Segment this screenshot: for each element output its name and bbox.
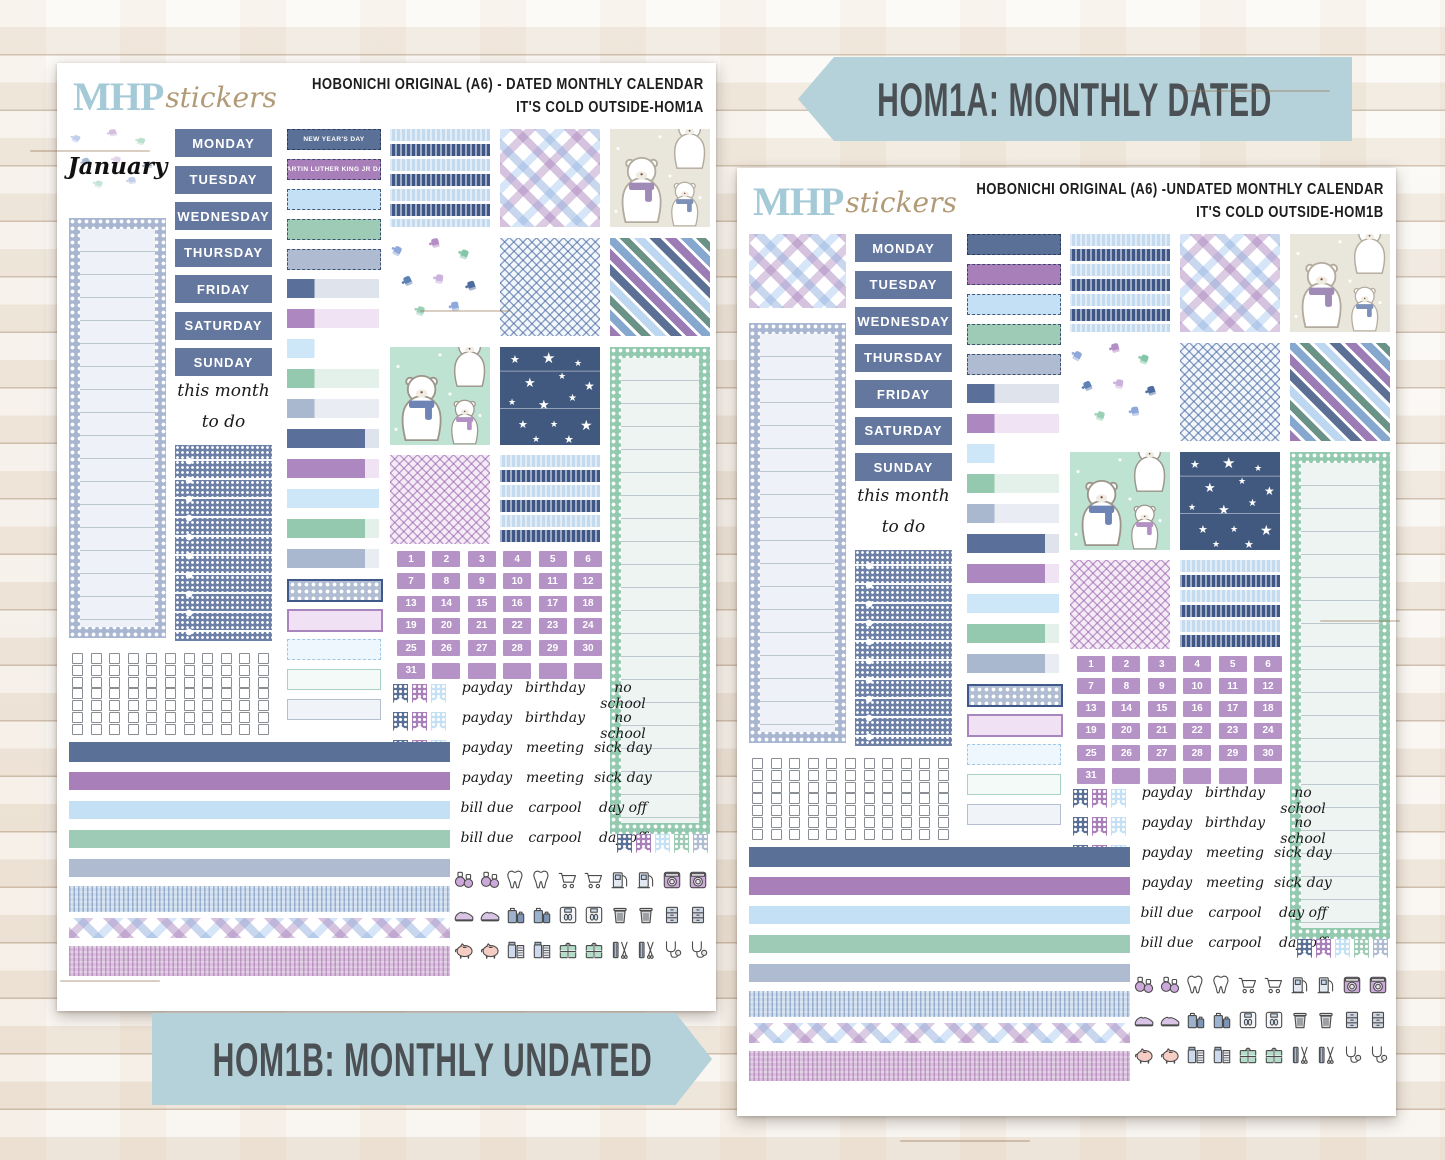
date-number-sticker: 28 <box>1183 745 1211 761</box>
pattern-box-bears-white <box>610 129 710 227</box>
label-box-sticker <box>287 669 381 690</box>
checkbox-sticker <box>109 712 120 723</box>
checkbox-sticker <box>864 793 875 804</box>
checkbox-sticker <box>239 712 250 723</box>
checkbox-sticker <box>109 665 120 676</box>
label-banner-hom1a: HOM1A: MONTHLY DATED <box>798 57 1352 141</box>
label-box-sticker <box>967 264 1061 285</box>
sticker-sheet-monthly-dated: MHPstickers HOBONICHI ORIGINAL (A6) - DA… <box>57 63 716 1011</box>
trash-can-icon <box>609 904 631 926</box>
checkbox-sticker <box>826 817 837 828</box>
checkbox-sticker <box>72 724 83 735</box>
star-glyph: ★ <box>1260 523 1273 537</box>
pattern-box-mittens <box>1070 343 1170 441</box>
checkbox-sticker <box>184 688 195 699</box>
color-bar-sticker <box>287 489 379 508</box>
label-box-sticker <box>287 219 381 240</box>
blank-date-sticker <box>503 663 531 679</box>
checkbox-sticker <box>938 793 949 804</box>
label-box-sticker <box>967 804 1061 825</box>
piggy-bank-icon <box>479 939 501 961</box>
weekday-sticker: WEDNESDAY <box>175 202 272 230</box>
date-number-sticker: 31 <box>397 663 425 679</box>
color-bar-sticker <box>967 444 1059 463</box>
date-number-sticker: 8 <box>1112 678 1140 694</box>
date-number-sticker: 5 <box>1219 656 1247 672</box>
script-word-sticker: payday <box>1135 815 1199 839</box>
banner-bottom-text: HOM1B: MONTHLY UNDATED <box>212 1032 652 1087</box>
month-header-sticker <box>749 234 846 308</box>
checkbox-sticker <box>752 805 763 816</box>
piggy-bank-icon <box>1159 1044 1181 1066</box>
date-number-sticker: 14 <box>1112 701 1140 717</box>
checkbox-sticker <box>882 805 893 816</box>
flag-banner-sticker <box>1073 817 1088 836</box>
date-number-sticker: 7 <box>1077 678 1105 694</box>
checkbox-sticker <box>91 712 102 723</box>
star-glyph: ★ <box>1212 540 1220 549</box>
checkbox-sticker <box>146 665 157 676</box>
shopping-cart-icon <box>557 869 579 891</box>
checkbox-sticker <box>202 665 213 676</box>
checkbox-sticker <box>239 677 250 688</box>
script-word-sticker: sick day <box>1271 875 1335 899</box>
lined-list-lines <box>80 229 155 627</box>
date-number-sticker: 9 <box>1148 678 1176 694</box>
shopping-cart-icon <box>1237 974 1259 996</box>
label-box-sticker <box>967 354 1061 375</box>
pattern-box-herringbone-purple <box>1070 560 1170 649</box>
haircut-icon <box>635 939 657 961</box>
checkbox-sticker <box>919 805 930 816</box>
washing-machine-icon <box>687 869 709 891</box>
washi-strip-plaid <box>749 1023 1130 1043</box>
trash-can-icon <box>1315 1009 1337 1031</box>
date-number-sticker: 12 <box>574 573 602 589</box>
date-number-sticker: 26 <box>1112 745 1140 761</box>
checkbox-sticker <box>91 700 102 711</box>
sneaker-icon <box>453 904 475 926</box>
pattern-box-stars-navy: ★★★★★★★★★★★★★★ <box>1180 452 1280 550</box>
checkbox-sticker <box>258 665 269 676</box>
label-box-sticker <box>967 324 1061 345</box>
date-number-sticker: 18 <box>574 596 602 612</box>
gift-icon <box>1263 1044 1285 1066</box>
date-number-sticker: 22 <box>503 618 531 634</box>
checkbox-sticker <box>752 817 763 828</box>
star-glyph: ★ <box>564 435 574 446</box>
checkbox-sticker <box>938 758 949 769</box>
checkbox-sticker <box>938 829 949 840</box>
script-word-sticker: birthday <box>523 680 587 704</box>
checkbox-sticker <box>165 665 176 676</box>
sneaker-icon <box>1159 1009 1181 1031</box>
flag-banner-sticker <box>431 684 446 703</box>
date-number-sticker: 1 <box>397 551 425 567</box>
color-bar-sticker <box>287 339 379 358</box>
checkbox-sticker <box>165 688 176 699</box>
checkbox-sticker <box>184 700 195 711</box>
blank-date-sticker <box>1148 768 1176 784</box>
checkbox-sticker <box>789 770 800 781</box>
date-number-sticker: 4 <box>1183 656 1211 672</box>
checkbox-sticker <box>221 688 232 699</box>
script-word-sticker: sick day <box>591 770 655 794</box>
trash-can-icon <box>1289 1009 1311 1031</box>
checkbox-sticker <box>72 665 83 676</box>
gift-icon <box>557 939 579 961</box>
checkbox-sticker <box>919 782 930 793</box>
checkbox-sticker <box>258 653 269 664</box>
medicine-icon <box>1211 1044 1233 1066</box>
date-number-sticker: 21 <box>1148 723 1176 739</box>
script-word-sticker: no school <box>1271 815 1335 839</box>
date-number-sticker: 10 <box>1183 678 1211 694</box>
checkbox-sticker <box>864 805 875 816</box>
checkbox-sticker <box>202 677 213 688</box>
checkbox-sticker <box>919 770 930 781</box>
date-number-sticker: 23 <box>539 618 567 634</box>
label-box-sticker <box>967 774 1061 795</box>
checkbox-sticker <box>165 653 176 664</box>
star-glyph: ★ <box>568 394 577 404</box>
date-number-sticker: 2 <box>1112 656 1140 672</box>
label-box-sticker <box>287 249 381 270</box>
wood-grain-mark <box>1180 90 1330 92</box>
file-cabinet-icon <box>1341 1009 1363 1031</box>
label-box-sticker <box>967 684 1063 707</box>
date-number-sticker: 19 <box>397 618 425 634</box>
label-box-sticker <box>967 234 1061 255</box>
color-bar-sticker <box>287 369 379 388</box>
script-word-sticker: payday <box>455 710 519 734</box>
date-number-sticker: 8 <box>432 573 460 589</box>
color-bar-sticker <box>287 429 379 448</box>
checkbox-sticker <box>202 653 213 664</box>
medicine-icon <box>505 939 527 961</box>
checkbox-sticker <box>91 724 102 735</box>
washi-strip-lightblue <box>749 906 1130 924</box>
checkbox-sticker <box>808 758 819 769</box>
flag-banner-sticker <box>393 684 408 703</box>
checkbox-sticker <box>91 665 102 676</box>
wood-grain-mark <box>60 980 160 982</box>
pattern-box-stars-navy: ★★★★★★★★★★★★★★ <box>500 347 600 445</box>
date-number-sticker: 3 <box>1148 656 1176 672</box>
checkbox-sticker <box>864 758 875 769</box>
script-word-sticker: meeting <box>1203 845 1267 869</box>
date-number-sticker: 15 <box>1148 701 1176 717</box>
script-word-sticker: day off <box>591 800 655 824</box>
piggy-bank-icon <box>1133 1044 1155 1066</box>
script-word-sticker: meeting <box>523 740 587 764</box>
script-word-sticker: bill due <box>455 830 519 854</box>
script-word-sticker: no school <box>1271 785 1335 809</box>
date-number-sticker: 20 <box>432 618 460 634</box>
label-box-sticker <box>967 744 1061 765</box>
checkbox-sticker <box>258 688 269 699</box>
weekday-sticker: TUESDAY <box>175 166 272 194</box>
checkbox-sticker <box>882 829 893 840</box>
weekday-sticker: MONDAY <box>175 129 272 157</box>
script-word-sticker: carpool <box>1203 935 1267 959</box>
medicine-icon <box>531 939 553 961</box>
gift-icon <box>583 939 605 961</box>
flag-banner-sticker <box>1335 939 1350 958</box>
weekday-sticker: WEDNESDAY <box>855 307 952 335</box>
color-bar-sticker <box>287 519 379 538</box>
checkbox-sticker <box>826 758 837 769</box>
pattern-box-diag-stripes <box>1290 343 1390 441</box>
star-glyph: ★ <box>1222 456 1235 471</box>
checkbox-sticker <box>221 653 232 664</box>
date-number-sticker: 21 <box>468 618 496 634</box>
pattern-box-plaid <box>1180 234 1280 332</box>
date-number-sticker: 14 <box>432 596 460 612</box>
checkbox-sticker <box>808 829 819 840</box>
checkbox-sticker <box>808 805 819 816</box>
checkbox-sticker <box>919 817 930 828</box>
checkbox-sticker <box>109 688 120 699</box>
checkbox-sticker <box>845 782 856 793</box>
weekday-sticker: SUNDAY <box>175 348 272 376</box>
dumbbell-icon <box>1133 974 1155 996</box>
star-glyph: ★ <box>1204 481 1216 494</box>
flag-banner-sticker <box>693 834 708 853</box>
checkbox-sticker <box>771 817 782 828</box>
gas-pump-icon <box>1315 974 1337 996</box>
script-word-sticker: payday <box>1135 845 1199 869</box>
date-number-sticker: 26 <box>432 640 460 656</box>
stethoscope-icon <box>1341 1044 1363 1066</box>
banner-top-text: HOM1A: MONTHLY DATED <box>878 72 1273 127</box>
flag-banner-sticker <box>674 834 689 853</box>
checkbox-sticker <box>146 700 157 711</box>
checkbox-sticker <box>146 712 157 723</box>
weekday-sticker: SATURDAY <box>855 417 952 445</box>
checkbox-sticker <box>128 688 139 699</box>
checkbox-sticker <box>771 758 782 769</box>
color-bar-sticker <box>967 624 1059 643</box>
checkbox-sticker <box>91 653 102 664</box>
pattern-box-herringbone-purple <box>390 455 490 544</box>
date-number-sticker: 15 <box>468 596 496 612</box>
star-glyph: ★ <box>584 380 595 392</box>
script-word-sticker: payday <box>1135 785 1199 809</box>
blank-date-sticker <box>1254 768 1282 784</box>
script-word-sticker: no school <box>591 710 655 734</box>
checkbox-sticker <box>146 688 157 699</box>
checkbox-sticker <box>752 829 763 840</box>
checkbox-sticker <box>919 758 930 769</box>
script-word-sticker: birthday <box>1203 815 1267 839</box>
sneaker-icon <box>479 904 501 926</box>
washi-strip-lightblue <box>69 801 450 819</box>
checkbox-sticker <box>109 724 120 735</box>
checkbox-sticker <box>202 712 213 723</box>
checkbox-sticker <box>789 817 800 828</box>
shopping-cart-icon <box>1263 974 1285 996</box>
to-do-label: to do <box>157 412 290 434</box>
script-word-sticker: sick day <box>1271 845 1335 869</box>
script-word-sticker: carpool <box>523 800 587 824</box>
checkbox-sticker <box>202 688 213 699</box>
this-month-label: this month <box>157 381 290 403</box>
checkbox-sticker <box>901 782 912 793</box>
color-bar-sticker <box>287 399 379 418</box>
date-number-sticker: 7 <box>397 573 425 589</box>
checkbox-sticker <box>845 829 856 840</box>
checkbox-sticker <box>752 770 763 781</box>
checkbox-sticker <box>184 653 195 664</box>
label-box-sticker <box>287 609 383 632</box>
gas-pump-icon <box>609 869 631 891</box>
checkbox-sticker <box>91 688 102 699</box>
checkbox-sticker <box>771 770 782 781</box>
checkbox-sticker <box>826 829 837 840</box>
star-glyph: ★ <box>580 418 593 432</box>
blank-date-sticker <box>1219 768 1247 784</box>
pattern-box-diag-stripes <box>610 238 710 336</box>
pattern-box-knit-rows <box>500 455 600 544</box>
weekday-sticker: TUESDAY <box>855 271 952 299</box>
scale-icon <box>1237 1009 1259 1031</box>
flag-banner-sticker <box>412 684 427 703</box>
checkbox-sticker <box>72 700 83 711</box>
date-number-sticker: 16 <box>503 596 531 612</box>
checkbox-sticker <box>845 770 856 781</box>
checkbox-sticker <box>771 829 782 840</box>
date-number-sticker: 5 <box>539 551 567 567</box>
date-number-sticker: 23 <box>1219 723 1247 739</box>
color-bar-sticker <box>967 474 1059 493</box>
washi-strip-knit-blue <box>69 886 450 912</box>
date-number-sticker: 10 <box>503 573 531 589</box>
checkbox-sticker <box>258 677 269 688</box>
flag-banner-sticker <box>393 712 408 731</box>
script-word-sticker: payday <box>455 740 519 764</box>
color-bar-sticker <box>967 594 1059 613</box>
star-glyph: ★ <box>1218 503 1230 516</box>
washi-strip-grayblue <box>69 859 450 877</box>
gas-pump-icon <box>635 869 657 891</box>
color-bar-sticker <box>967 564 1059 583</box>
script-word-sticker: payday <box>455 770 519 794</box>
checkbox-sticker <box>808 770 819 781</box>
date-number-sticker: 1 <box>1077 656 1105 672</box>
pattern-box-knit-rows <box>1180 560 1280 649</box>
checkbox-sticker <box>752 758 763 769</box>
checkbox-sticker <box>864 817 875 828</box>
blank-date-sticker <box>539 663 567 679</box>
checkbox-sticker <box>146 653 157 664</box>
haircut-icon <box>609 939 631 961</box>
product-photo-wood-background: MHPstickers HOBONICHI ORIGINAL (A6) - DA… <box>0 0 1445 1160</box>
pattern-box-herringbone-blue <box>1180 343 1280 441</box>
date-number-sticker: 6 <box>574 551 602 567</box>
checkbox-sticker <box>808 793 819 804</box>
checkbox-sticker <box>864 770 875 781</box>
star-glyph: ★ <box>1230 525 1238 534</box>
checkbox-sticker <box>826 805 837 816</box>
checkbox-sticker <box>938 817 949 828</box>
checkbox-sticker <box>919 829 930 840</box>
washi-strip-purple <box>69 772 450 790</box>
checkbox-sticker <box>72 653 83 664</box>
star-glyph: ★ <box>1238 477 1246 486</box>
checkbox-sticker <box>938 805 949 816</box>
date-number-sticker: 9 <box>468 573 496 589</box>
label-box-sticker: MARTIN LUTHER KING JR DAY <box>287 159 381 180</box>
checkbox-sticker <box>239 653 250 664</box>
label-box-sticker: NEW YEAR'S DAY <box>287 129 381 150</box>
flag-banner-sticker <box>1111 817 1126 836</box>
color-bar-sticker <box>967 384 1059 403</box>
dumbbell-icon <box>1159 974 1181 996</box>
pattern-box-bears-mint <box>1070 452 1170 550</box>
color-bar-sticker <box>967 414 1059 433</box>
checkbox-sticker <box>901 793 912 804</box>
checkbox-sticker <box>221 712 232 723</box>
luggage-icon <box>1185 1009 1207 1031</box>
pattern-box-plaid <box>500 129 600 227</box>
script-word-sticker: payday <box>455 680 519 704</box>
label-box-sticker <box>967 294 1061 315</box>
date-number-sticker: 16 <box>1183 701 1211 717</box>
star-glyph: ★ <box>524 376 536 389</box>
star-glyph: ★ <box>508 398 516 407</box>
star-glyph: ★ <box>538 398 550 411</box>
washi-strip-grayblue <box>749 964 1130 982</box>
washi-strip-purple <box>749 877 1130 895</box>
date-number-sticker: 22 <box>1183 723 1211 739</box>
script-word-sticker: birthday <box>1203 785 1267 809</box>
checkbox-sticker <box>864 829 875 840</box>
checkbox-sticker <box>789 758 800 769</box>
label-box-sticker <box>287 699 381 720</box>
flag-banner-sticker <box>1092 789 1107 808</box>
file-cabinet-icon <box>661 904 683 926</box>
pattern-box-knit-rows <box>390 129 490 227</box>
wood-grain-mark <box>420 310 510 312</box>
luggage-icon <box>1211 1009 1233 1031</box>
date-number-sticker: 18 <box>1254 701 1282 717</box>
checkbox-sticker <box>184 712 195 723</box>
blank-date-sticker <box>574 663 602 679</box>
tooth-icon <box>1185 974 1207 996</box>
script-word-sticker: carpool <box>1203 905 1267 929</box>
weekday-sticker: FRIDAY <box>855 380 952 408</box>
washi-strip-mint <box>749 935 1130 953</box>
label-box-sticker <box>287 189 381 210</box>
gas-pump-icon <box>1289 974 1311 996</box>
checkbox-sticker <box>901 770 912 781</box>
star-glyph: ★ <box>1254 464 1262 473</box>
checkbox-sticker <box>239 688 250 699</box>
checkbox-sticker <box>882 782 893 793</box>
checkbox-sticker <box>146 724 157 735</box>
checkbox-sticker <box>128 712 139 723</box>
script-word-sticker: no school <box>591 680 655 704</box>
date-number-sticker: 27 <box>1148 745 1176 761</box>
sticker-sheet-monthly-undated: MHPstickers HOBONICHI ORIGINAL (A6) -UND… <box>737 168 1396 1116</box>
wood-grain-mark <box>1320 620 1400 622</box>
date-number-sticker: 13 <box>1077 701 1105 717</box>
flag-banner-sticker <box>655 834 670 853</box>
script-word-sticker: meeting <box>523 770 587 794</box>
dumbbell-icon <box>453 869 475 891</box>
lined-list-sticker <box>749 323 846 743</box>
